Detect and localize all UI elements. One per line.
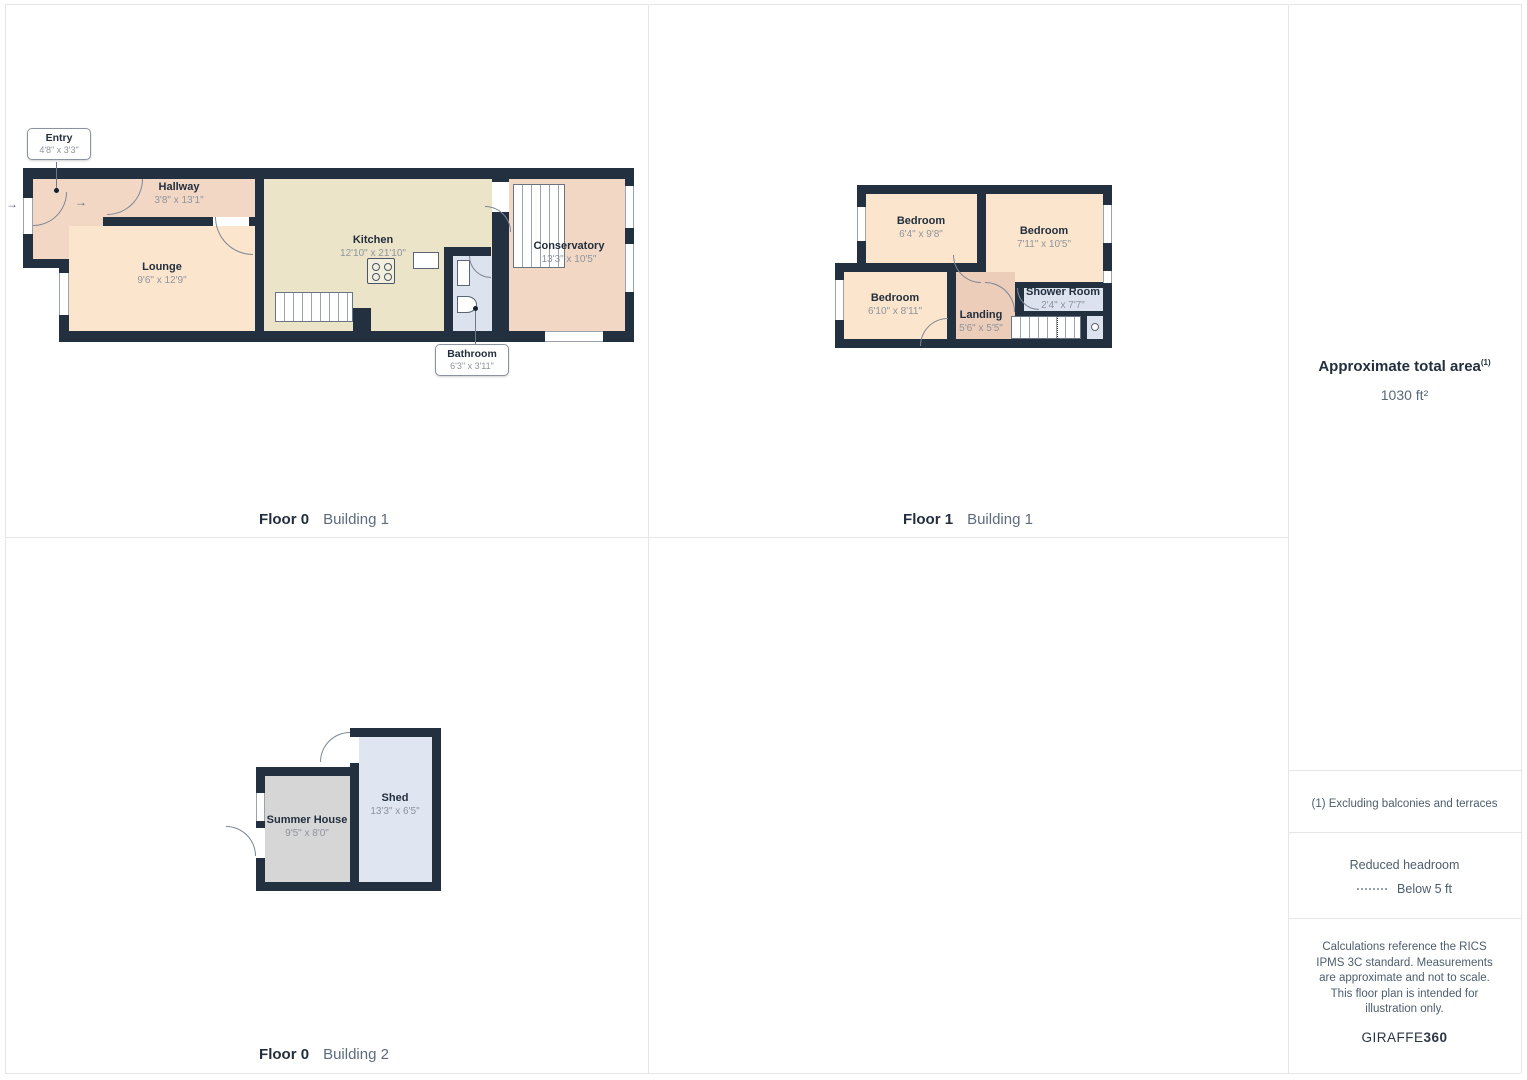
room-name: Kitchen	[340, 234, 406, 247]
sink	[457, 260, 470, 286]
floorplan-floor0-building1: → → Hallway 3'8" x 13'1" Lounge 9'6" x 1…	[23, 168, 634, 342]
room-dims: 13'3" x 10'5"	[534, 254, 605, 266]
room-dims: 5'6" x 5'5"	[959, 323, 1003, 335]
window	[545, 331, 603, 342]
stove-icon	[367, 258, 395, 284]
room-name: Bedroom	[897, 215, 945, 228]
floorplan-floor0-building2: Shed 13'3" x 6'5" Summer House 9'5" x 8'…	[256, 728, 441, 891]
leader-line	[56, 162, 57, 190]
leader-dot	[54, 188, 59, 193]
leader-line	[475, 311, 476, 344]
reduced-headroom-legend-row: Below 5 ft	[1288, 882, 1521, 896]
room-name: Hallway	[154, 181, 203, 194]
caption-floor1-building1: Floor 1Building 1	[648, 510, 1288, 530]
floorplan-floor1-building1: Bedroom 6'4" x 9'8" Bedroom 7'11" x 10'5…	[835, 185, 1115, 348]
floorplan-page: { "plans": [ { "caption_floor": "Floor 0…	[0, 0, 1527, 1080]
total-area-title-text: Approximate total area	[1318, 358, 1481, 375]
stair-step	[353, 308, 371, 331]
burner-icon	[372, 263, 380, 271]
room-label-hallway: Hallway 3'8" x 13'1"	[154, 181, 203, 207]
room-label-lounge: Lounge 9'6" x 12'9"	[137, 261, 186, 287]
burner-icon	[384, 273, 392, 281]
room-dims: 6'4" x 9'8"	[897, 229, 945, 241]
frame-left-border	[5, 4, 6, 1073]
room-dims: 12'10" x 21'10"	[340, 248, 406, 260]
room-label-landing: Landing 5'6" x 5'5"	[959, 309, 1003, 335]
room-name: Lounge	[137, 261, 186, 274]
room-name: Bedroom	[868, 292, 922, 305]
wall	[444, 247, 453, 331]
door-arc	[226, 826, 256, 856]
room-dims: 3'8" x 13'1"	[154, 195, 203, 207]
total-area-footnote-marker: (1)	[1481, 358, 1491, 367]
footnote-excluding: (1) Excluding balconies and terraces	[1288, 798, 1521, 810]
room-label-bedroom-1: Bedroom 6'4" x 9'8"	[897, 215, 945, 241]
room-label-shower: Shower Room 2'4" x 7'7"	[1026, 286, 1100, 312]
sidebar-divider	[1288, 832, 1521, 833]
room-dims: 6'10" x 8'11"	[868, 306, 922, 318]
reduced-headroom-title: Reduced headroom	[1288, 858, 1521, 872]
giraffe360-logo-suffix: 360	[1423, 1030, 1447, 1045]
frame-bottom-border	[5, 1073, 1521, 1074]
frame-right-border	[1521, 4, 1522, 1073]
room-dims: 2'4" x 7'7"	[1026, 300, 1100, 312]
caption-floor-label: Floor 1	[903, 511, 953, 528]
room-name: Summer House	[267, 814, 348, 827]
caption-floor-label: Floor 0	[259, 511, 309, 528]
room-dims: 13'3" x 6'5"	[370, 806, 419, 818]
window	[1103, 271, 1112, 283]
entry-callout: Entry 4'8" x 3'3"	[27, 128, 91, 160]
window	[1103, 205, 1112, 243]
caption-floor-label: Floor 0	[259, 1046, 309, 1063]
disclaimer-text: Calculations reference the RICS IPMS 3C …	[1307, 940, 1502, 1018]
caption-floor0-building1: Floor 0Building 1	[0, 510, 648, 530]
giraffe360-logo: GIRAFFE360	[1288, 1030, 1521, 1045]
giraffe360-logo-name: GIRAFFE	[1361, 1030, 1423, 1045]
window	[625, 244, 634, 292]
staircase	[275, 292, 353, 322]
reduced-headroom-legend-label: Below 5 ft	[1397, 882, 1452, 896]
window	[23, 198, 33, 234]
room-name: Entry	[33, 132, 85, 144]
window	[59, 273, 69, 315]
room-label-shed: Shed 13'3" x 6'5"	[370, 792, 419, 818]
room-label-kitchen: Kitchen 12'10" x 21'10"	[340, 234, 406, 260]
room-dims: 6'3" x 3'11"	[441, 361, 503, 372]
room-name: Shed	[370, 792, 419, 805]
sidebar: Approximate total area(1) 1030 ft² (1) E…	[1288, 4, 1521, 1073]
door-opening	[256, 828, 265, 858]
burner-icon	[384, 263, 392, 271]
caption-building-label: Building 1	[967, 511, 1033, 528]
burner-icon	[372, 273, 380, 281]
window	[256, 793, 265, 821]
room-label-conservatory: Conservatory 13'3" x 10'5"	[534, 240, 605, 266]
room-label-bedroom-3: Bedroom 6'10" x 8'11"	[868, 292, 922, 318]
shower-head	[1091, 323, 1099, 331]
sidebar-divider	[1288, 918, 1521, 919]
grid-horizontal-divider	[5, 537, 1288, 538]
room-name: Conservatory	[534, 240, 605, 253]
window	[857, 207, 866, 241]
dotted-line-swatch	[1357, 888, 1387, 890]
total-area-title: Approximate total area(1)	[1288, 358, 1521, 375]
room-dims: 4'8" x 3'3"	[33, 145, 85, 156]
room-label-bedroom-2: Bedroom 7'11" x 10'5"	[1017, 225, 1071, 251]
door-arc	[320, 732, 350, 762]
caption-building-label: Building 2	[323, 1046, 389, 1063]
room-name: Bedroom	[1017, 225, 1071, 238]
window	[625, 186, 634, 228]
staircase	[1011, 316, 1081, 339]
room-name: Shower Room	[1026, 286, 1100, 299]
total-area-value: 1030 ft²	[1288, 387, 1521, 403]
entry-arrow: →	[6, 198, 18, 210]
room-label-summer-house: Summer House 9'5" x 8'0"	[267, 814, 348, 840]
door-opening	[350, 737, 359, 763]
room-dims: 7'11" x 10'5"	[1017, 239, 1071, 251]
caption-floor0-building2: Floor 0Building 2	[0, 1045, 648, 1065]
sidebar-divider	[1288, 770, 1521, 771]
kitchen-counter	[413, 252, 439, 269]
bathroom-callout: Bathroom 6'3" x 3'11"	[435, 344, 509, 376]
room-dims: 9'6" x 12'9"	[137, 275, 186, 287]
grid-vertical-divider	[648, 4, 649, 1073]
room-name: Landing	[959, 309, 1003, 322]
entry-arrow: →	[75, 196, 87, 208]
reduced-headroom-line	[1057, 316, 1058, 339]
caption-building-label: Building 1	[323, 511, 389, 528]
window	[835, 280, 844, 320]
room-dims: 9'5" x 8'0"	[267, 828, 348, 840]
room-name: Bathroom	[441, 348, 503, 360]
